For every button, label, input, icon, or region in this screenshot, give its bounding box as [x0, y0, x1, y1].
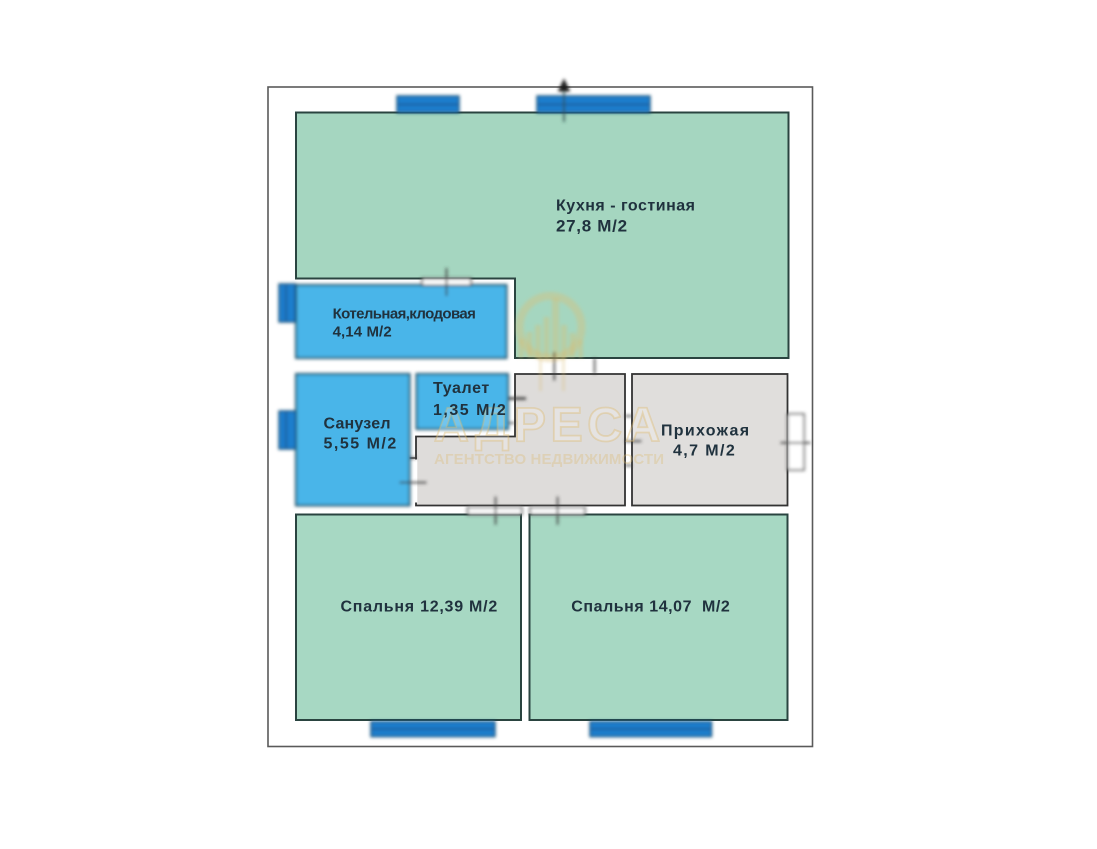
svg-text:5,55 М/2: 5,55 М/2 — [324, 436, 398, 453]
svg-text:27,8 М/2: 27,8 М/2 — [556, 217, 628, 236]
svg-text:Спальня 12,39 М/2: Спальня 12,39 М/2 — [341, 599, 498, 616]
svg-text:Прихожая: Прихожая — [661, 423, 750, 440]
svg-text:4,14 М/2: 4,14 М/2 — [333, 323, 392, 340]
svg-text:4,7 М/2: 4,7 М/2 — [673, 443, 736, 460]
svg-text:1,35 М/2: 1,35 М/2 — [433, 402, 507, 419]
svg-text:Кухня - гостиная: Кухня - гостиная — [556, 198, 695, 215]
svg-text:АГЕНТСТВО НЕДВИЖИМОСТИ: АГЕНТСТВО НЕДВИЖИМОСТИ — [434, 451, 664, 468]
svg-text:Туалет: Туалет — [433, 380, 490, 397]
svg-text:Котельная,клодовая: Котельная,клодовая — [333, 306, 476, 323]
svg-text:Спальня 14,07 М/2: Спальня 14,07 М/2 — [571, 599, 730, 616]
svg-text:Санузел: Санузел — [324, 416, 391, 433]
